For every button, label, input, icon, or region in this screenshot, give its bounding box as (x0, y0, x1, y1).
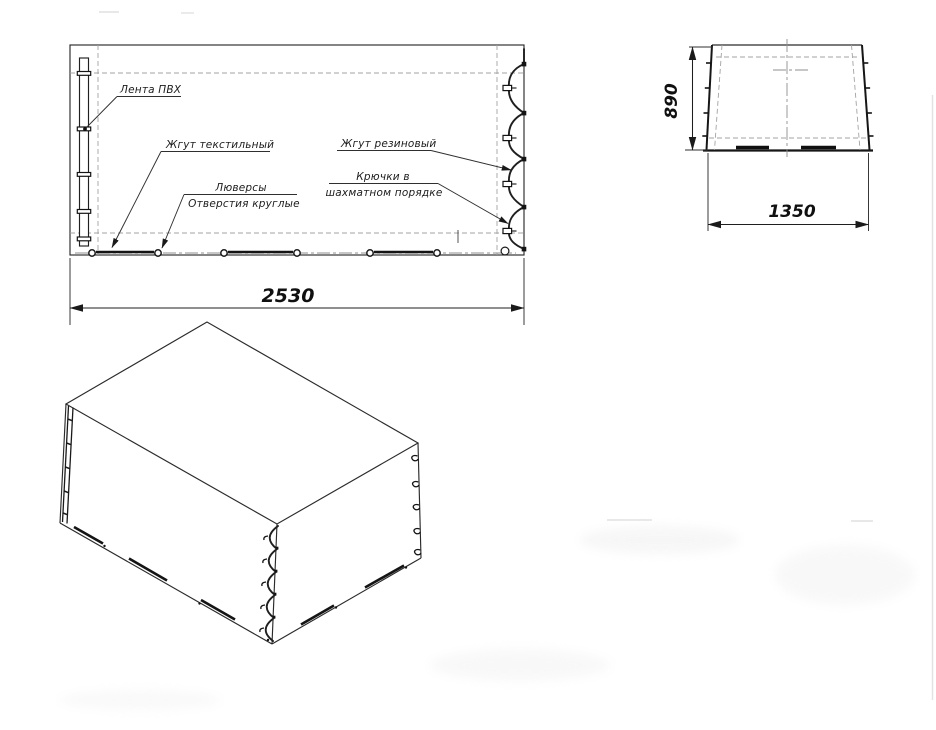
leader-dot (83, 127, 87, 131)
isometric-view (60, 322, 421, 644)
callout-hooks-label-2: шахматном порядке (325, 187, 442, 199)
iso-pvc-tape (63, 406, 74, 524)
hook (503, 85, 517, 90)
dimension-length: 2530 (70, 258, 524, 325)
dimension-length-value: 2530 (262, 285, 315, 307)
grommet (367, 250, 373, 256)
callout-pvc-tape-label: Лента ПВХ (119, 84, 182, 96)
dimension-width: 1350 (708, 153, 869, 231)
grommet (294, 250, 300, 256)
dimension-width-value: 1350 (768, 202, 815, 222)
iso-bottom-right-edge (272, 558, 421, 644)
front-development-view: Лента ПВХ Жгут текстильный Люверсы Отвер… (70, 45, 526, 325)
callout-hooks: Крючки в шахматном порядке (325, 171, 508, 224)
callout-pvc-tape: Лента ПВХ (83, 84, 182, 131)
technical-drawing: Лента ПВХ Жгут текстильный Люверсы Отвер… (0, 0, 936, 730)
rubber-cord (503, 49, 526, 251)
callout-rubber-cord: Жгут резиновый (337, 138, 511, 170)
iso-right-edge (418, 443, 421, 558)
end-edge-hooks (702, 63, 873, 136)
drawing-sheet: Лента ПВХ Жгут текстильный Люверсы Отвер… (0, 0, 936, 730)
iso-front-edge (272, 524, 277, 644)
dimension-height: 890 (662, 47, 713, 150)
round-hole (501, 247, 509, 255)
callout-hooks-label-1: Крючки в (356, 171, 409, 183)
pvc-tape-strip (77, 58, 90, 246)
grommet (221, 250, 227, 256)
grommet (434, 250, 440, 256)
iso-top-face (66, 322, 418, 524)
iso-bottom-straps (74, 527, 407, 641)
hook (503, 135, 517, 140)
scan-artifacts (60, 12, 933, 710)
callout-grommets: Люверсы Отверстия круглые (162, 182, 300, 248)
callout-round-holes-label: Отверстия круглые (188, 198, 300, 210)
callout-grommets-label: Люверсы (214, 182, 267, 194)
dimension-height-value: 890 (662, 83, 682, 119)
callout-rubber-cord-label: Жгут резиновый (340, 138, 436, 150)
grommet (155, 250, 161, 256)
fold-lines (70, 45, 524, 255)
end-outline (703, 45, 873, 151)
grommet (89, 250, 95, 256)
callout-textile-cord-label: Жгут текстильный (165, 139, 274, 151)
iso-rubber-cord (260, 526, 279, 641)
hooks-staggered (503, 85, 517, 233)
panel-outline (70, 45, 524, 255)
iso-bottom-left-edge (60, 523, 272, 644)
end-view: 890 1350 (662, 39, 874, 231)
hook (503, 181, 517, 186)
end-fold-lines (709, 39, 866, 157)
